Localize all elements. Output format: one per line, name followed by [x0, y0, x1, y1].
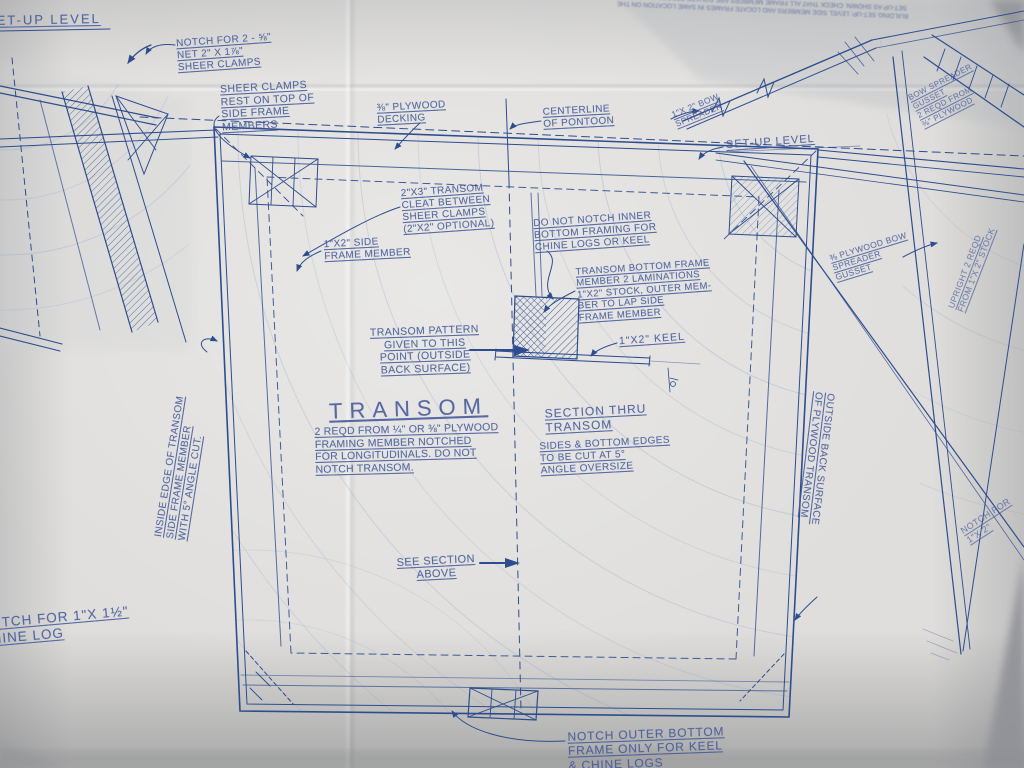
label-transom-pattern: TRANSOM PATTERN GIVEN TO THIS POINT (OUT…	[349, 322, 501, 378]
table-corner-bottomright	[984, 556, 1024, 768]
label-transom-cleat: 2"X3" TRANSOM CLEAT BETWEEN SHEER CLAMPS…	[400, 182, 494, 236]
blueprint-photo: SET-UP LEVEL NOTCH FOR 2 - ⅝" NET 2" X 1…	[0, 0, 1024, 768]
label-set-up-level-left: SET-UP LEVEL	[0, 11, 101, 29]
label-transom-desc: 2 REQD FROM ¼" OR ⅜" PLYWOOD FRAMING MEM…	[314, 420, 540, 476]
label-plywood-decking: ⅜" PLYWOOD DECKING	[376, 99, 446, 127]
label-section-thru-desc: SIDES & BOTTOM EDGES TO BE CUT AT 5° ANG…	[539, 435, 671, 478]
blueprint-linework	[0, 0, 1024, 768]
label-sheer-clamps-rest: SHEER CLAMPS REST ON TOP OF SIDE FRAME M…	[220, 79, 316, 134]
label-notch-outer-bottom: NOTCH OUTER BOTTOM FRAME ONLY FOR KEEL &…	[567, 724, 725, 768]
label-side-frame-member: 1"X2" SIDE FRAME MEMBER	[323, 235, 411, 263]
paper-bottom-shadow	[0, 750, 1024, 768]
label-centerline: CENTERLINE OF PONTOON	[542, 103, 614, 131]
label-notch-sheer-clamps: NOTCH FOR 2 - ⅝" NET 2" X 1⅞" SHEER CLAM…	[176, 32, 273, 75]
label-section-thru-title: SECTION THRU TRANSOM	[544, 401, 647, 435]
label-see-section: SEE SECTION ABOVE	[396, 553, 476, 583]
label-bottom-frame: TRANSOM BOTTOM FRAME MEMBER 2 LAMINATION…	[575, 257, 713, 323]
label-transom-title: TRANSOM	[329, 393, 489, 425]
